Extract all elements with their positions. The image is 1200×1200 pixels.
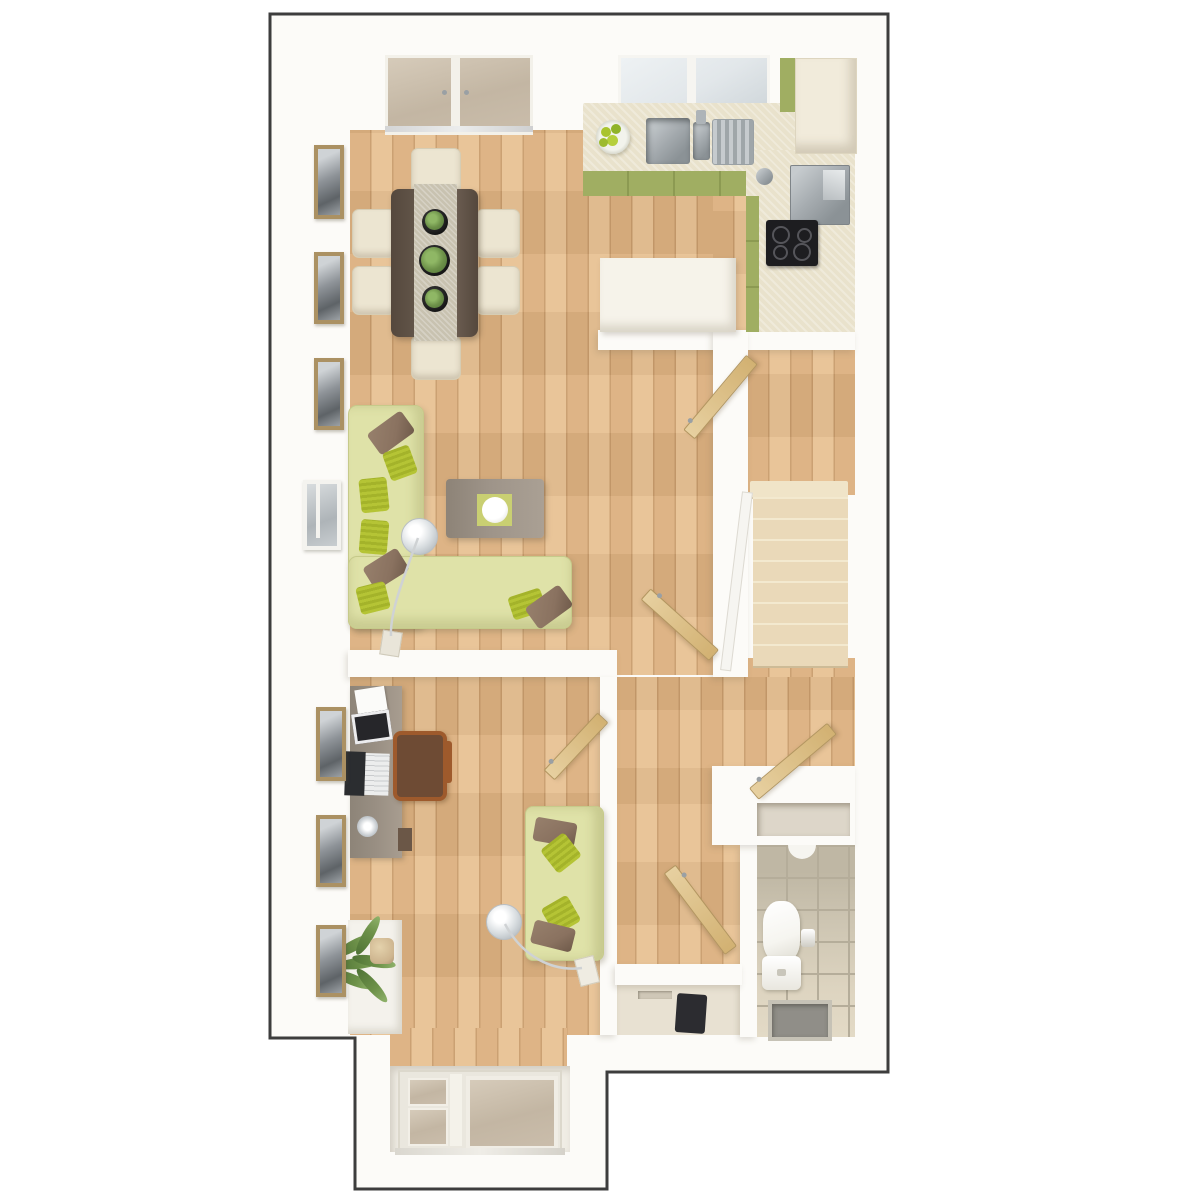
laptop bbox=[344, 751, 390, 797]
toilet-flush-button bbox=[777, 969, 786, 976]
sofa-cushion-lime bbox=[359, 519, 390, 555]
side-window-framed bbox=[314, 145, 344, 219]
floor-plan-canvas bbox=[0, 0, 1200, 1200]
wc-room bbox=[757, 845, 855, 1037]
fruit bbox=[607, 135, 618, 146]
desk-lamp-base bbox=[357, 816, 378, 837]
door-handle bbox=[687, 417, 694, 424]
table-plant bbox=[425, 211, 444, 230]
toilet-bowl bbox=[763, 901, 800, 963]
laptop-screen bbox=[344, 751, 366, 796]
wc-hall-wall bbox=[740, 845, 757, 1037]
dining-chair-head-bottom bbox=[411, 335, 461, 380]
peninsula-counter bbox=[600, 258, 736, 332]
french-door-mullion bbox=[451, 58, 460, 126]
oven-highlight bbox=[823, 170, 845, 200]
dining-chair-right bbox=[476, 209, 520, 258]
dining-chair-left bbox=[352, 209, 396, 258]
store-lobby-doormat bbox=[675, 993, 708, 1034]
fruit-bowl bbox=[596, 120, 630, 154]
table-plant-pot bbox=[419, 245, 450, 276]
front-door-threshold bbox=[395, 1148, 565, 1155]
oven-unit bbox=[790, 165, 850, 225]
front-door-glass bbox=[466, 1076, 558, 1150]
side-window-small-mullion bbox=[316, 484, 320, 538]
front-door-mullion bbox=[450, 1074, 462, 1146]
desk-tablet bbox=[351, 710, 393, 745]
side-window-framed bbox=[316, 925, 346, 997]
sidelight-pane-bottom bbox=[408, 1108, 448, 1146]
office-chair bbox=[393, 731, 447, 801]
hob-ring bbox=[773, 245, 788, 260]
dining-chair-left bbox=[352, 266, 396, 315]
palm-pot bbox=[370, 938, 394, 964]
store-lobby-vent bbox=[638, 991, 672, 999]
store-lobby-top-wall bbox=[615, 964, 742, 985]
side-window-framed bbox=[316, 815, 346, 887]
wc-basin-edge bbox=[788, 845, 816, 859]
hob-ring bbox=[772, 226, 790, 244]
study-floor-lamp-shade bbox=[486, 904, 522, 940]
table-plant-pot bbox=[422, 209, 448, 235]
kettle bbox=[756, 168, 773, 185]
door-handle bbox=[548, 758, 555, 765]
french-door-threshold bbox=[385, 126, 533, 132]
dining-chair-right bbox=[476, 266, 520, 315]
hob-ring bbox=[793, 243, 811, 261]
laptop-keyboard bbox=[364, 753, 389, 796]
wc-recessed-mat bbox=[768, 1000, 832, 1041]
door-handle bbox=[756, 776, 763, 783]
toilet-cistern bbox=[762, 956, 801, 990]
kitchen-base-cabinets bbox=[583, 171, 769, 196]
living-floor-lamp-shade bbox=[401, 518, 438, 555]
table-plant bbox=[425, 289, 444, 308]
staircase bbox=[753, 481, 848, 666]
toilet-roll-holder bbox=[801, 929, 815, 947]
side-window-framed bbox=[314, 358, 344, 430]
sink-drainer bbox=[712, 119, 754, 165]
understairs-cupboard-niche bbox=[757, 803, 850, 836]
sofa-cushion-lime bbox=[358, 477, 389, 514]
side-window-framed bbox=[314, 252, 344, 324]
coffee-table-bowl bbox=[482, 497, 508, 523]
office-chair-backrest bbox=[444, 741, 452, 783]
sink-tap bbox=[696, 110, 706, 124]
kitchen-window-mullion bbox=[687, 58, 696, 104]
hob bbox=[766, 220, 818, 266]
table-plant-pot bbox=[422, 286, 448, 312]
green-wall-cabinet bbox=[780, 58, 795, 112]
side-window-small bbox=[303, 480, 341, 550]
front-door-assembly bbox=[398, 1070, 562, 1152]
fruit bbox=[611, 124, 621, 134]
hob-ring bbox=[797, 228, 812, 243]
french-door-handle bbox=[442, 90, 447, 95]
desk-return-shelf bbox=[398, 828, 412, 851]
sink-unit bbox=[646, 116, 752, 166]
side-window-framed bbox=[316, 707, 346, 781]
french-door-handle bbox=[464, 90, 469, 95]
lower-hall-floor-upper bbox=[615, 677, 855, 768]
tall-fridge-unit bbox=[795, 58, 857, 154]
sink-main-bowl bbox=[646, 118, 690, 164]
table-plant bbox=[421, 247, 447, 273]
kitchen-side-cabinets bbox=[746, 196, 759, 332]
living-floor-lamp-base bbox=[379, 630, 403, 658]
sidelight-pane-top bbox=[408, 1078, 448, 1106]
sink-half-bowl bbox=[693, 122, 710, 160]
stair-step bbox=[753, 644, 848, 668]
stair-hall-floor bbox=[748, 345, 855, 495]
fruit bbox=[599, 138, 608, 147]
french-doors bbox=[385, 55, 533, 135]
